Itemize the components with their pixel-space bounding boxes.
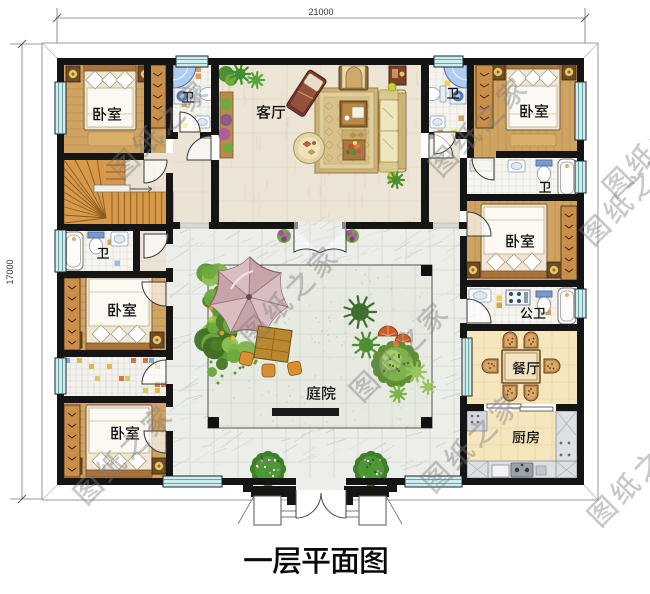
svg-text:21000: 21000 [308,7,333,17]
svg-text:17000: 17000 [5,259,15,284]
